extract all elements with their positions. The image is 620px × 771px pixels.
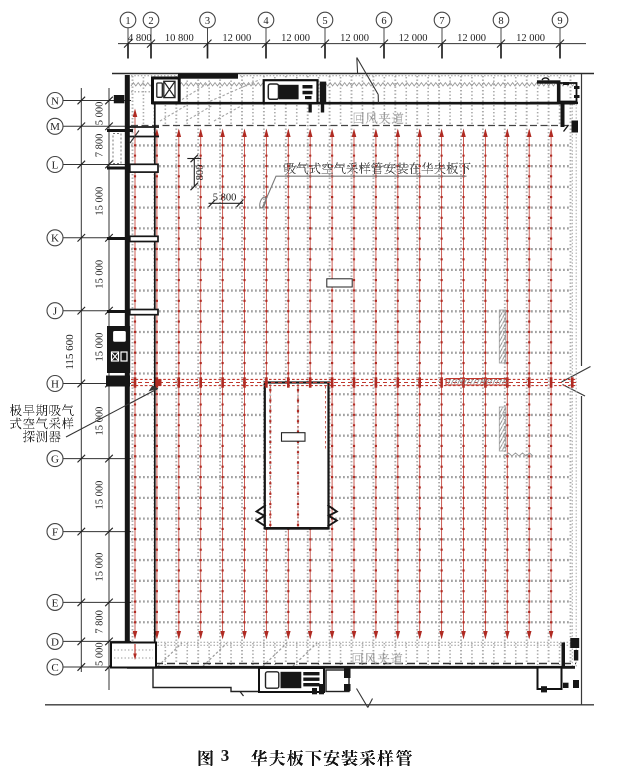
svg-text:6: 6 bbox=[381, 16, 386, 27]
svg-text:D: D bbox=[51, 636, 59, 648]
svg-text:C: C bbox=[51, 662, 58, 674]
svg-text:1: 1 bbox=[125, 16, 130, 27]
svg-text:800: 800 bbox=[195, 165, 206, 181]
svg-text:15 000: 15 000 bbox=[95, 333, 106, 362]
svg-text:12 000: 12 000 bbox=[222, 33, 251, 44]
svg-text:7 800: 7 800 bbox=[95, 610, 106, 634]
svg-text:15 000: 15 000 bbox=[95, 187, 106, 216]
svg-text:3: 3 bbox=[205, 16, 210, 27]
svg-text:12 000: 12 000 bbox=[457, 33, 486, 44]
svg-text:15 000: 15 000 bbox=[95, 260, 106, 289]
svg-text:9: 9 bbox=[557, 16, 562, 27]
svg-text:4: 4 bbox=[263, 16, 269, 27]
svg-text:2: 2 bbox=[148, 16, 153, 27]
svg-text:15 000: 15 000 bbox=[95, 553, 106, 582]
svg-text:5 000: 5 000 bbox=[95, 642, 106, 666]
svg-text:4 800: 4 800 bbox=[128, 33, 152, 44]
svg-text:F: F bbox=[52, 527, 58, 539]
svg-text:7 800: 7 800 bbox=[95, 134, 106, 158]
svg-text:N: N bbox=[51, 95, 59, 107]
svg-text:M: M bbox=[50, 121, 60, 133]
svg-text:3: 3 bbox=[221, 746, 230, 765]
svg-text:L: L bbox=[52, 159, 59, 171]
svg-text:115 600: 115 600 bbox=[64, 334, 76, 370]
svg-text:12 000: 12 000 bbox=[340, 33, 369, 44]
svg-text:5: 5 bbox=[322, 16, 327, 27]
svg-text:5 000: 5 000 bbox=[95, 102, 106, 126]
svg-text:J: J bbox=[53, 306, 58, 318]
svg-text:5 800: 5 800 bbox=[213, 193, 237, 204]
svg-text:E: E bbox=[52, 597, 59, 609]
svg-text:K: K bbox=[51, 233, 59, 245]
svg-text:7: 7 bbox=[439, 16, 444, 27]
svg-text:8: 8 bbox=[498, 16, 503, 27]
svg-text:10 800: 10 800 bbox=[165, 33, 194, 44]
svg-text:H: H bbox=[51, 378, 59, 390]
svg-text:G: G bbox=[51, 454, 59, 466]
svg-text:15 000: 15 000 bbox=[95, 481, 106, 510]
svg-text:12 000: 12 000 bbox=[516, 33, 545, 44]
svg-text:12 000: 12 000 bbox=[399, 33, 428, 44]
svg-text:12 000: 12 000 bbox=[281, 33, 310, 44]
